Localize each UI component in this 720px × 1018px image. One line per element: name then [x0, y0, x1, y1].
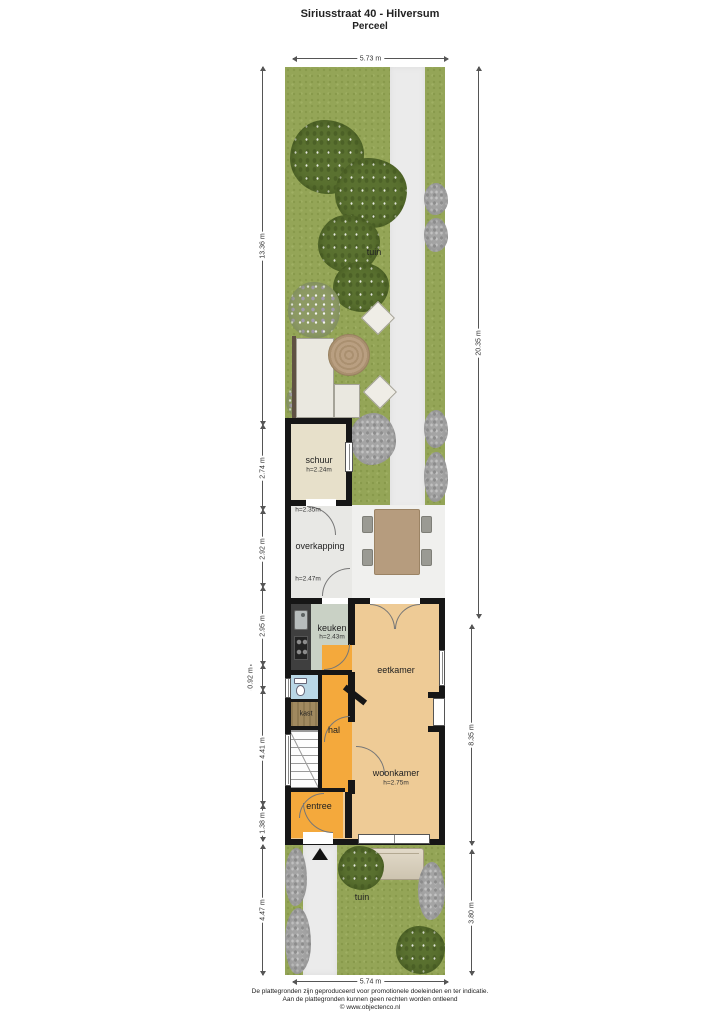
dimension-right-380: 3.80 m	[471, 850, 472, 975]
dimension-label: 4.47 m	[260, 897, 267, 922]
dimension-left-1336: 13.36 m	[262, 67, 263, 425]
dimension-label: 2.74 m	[260, 455, 267, 480]
room-height-woonkamer: h=2.75m	[383, 780, 408, 787]
height-label-235: h=2.35m	[295, 507, 320, 514]
lounge-sofa-corner	[334, 384, 360, 418]
dimension-label: 2.92 m	[260, 536, 267, 561]
wall-toilet-kast	[291, 699, 321, 702]
dimension-label: 3.80 m	[469, 900, 476, 925]
tree	[396, 926, 445, 974]
page-subtitle: Perceel	[190, 21, 550, 32]
dimension-label: 8.35 m	[469, 722, 476, 747]
dimension-label: 4.41 m	[260, 735, 267, 760]
page-title: Siriusstraat 40 - Hilversum	[190, 8, 550, 20]
gray-bush	[350, 413, 396, 465]
flower-bush	[288, 282, 340, 338]
wall-keuken-eetkamer	[348, 598, 355, 645]
wall-entree-woonkamer	[345, 792, 352, 838]
room-label-entree: entree	[306, 801, 332, 811]
dimension-left-447: 4.47 m	[262, 845, 263, 975]
wall-kast-stairs	[287, 726, 322, 730]
room-label-overkapping: overkapping	[295, 541, 344, 551]
disclaimer-line2: Aan de plattegronden kunnen geen rechten…	[150, 996, 590, 1004]
dimension-label: 13.36 m	[260, 231, 267, 260]
round-garden-table	[328, 334, 370, 376]
gray-bush	[424, 410, 448, 448]
overkapping-keuken-door-opening	[322, 598, 348, 604]
room-label-keuken: keuken	[317, 623, 346, 633]
overkapping-left-wall	[285, 505, 291, 600]
kitchen-sink	[294, 610, 308, 630]
dimension-left-138: 1.38 m	[262, 805, 263, 841]
floorplan-page: Siriusstraat 40 - Hilversum Perceel tuin…	[0, 0, 720, 1018]
dining-chair	[421, 549, 432, 566]
dimension-label: 2.95 m	[260, 613, 267, 638]
gray-bush	[418, 862, 445, 920]
dimension-bottom-label: 5.74 m	[357, 979, 384, 986]
schuur-door-opening	[306, 499, 336, 506]
dining-table	[374, 509, 420, 575]
eetkamer-window	[439, 650, 445, 686]
dimension-left-092: 0.92 m	[250, 665, 251, 690]
room-label-schuur: schuur	[305, 455, 332, 465]
dimension-right-835: 8.35 m	[471, 625, 472, 845]
dining-chair	[362, 516, 373, 533]
toilet-window	[285, 678, 291, 698]
dimension-right-2035: 20.35 m	[478, 67, 479, 618]
gray-bush	[424, 183, 448, 215]
dimension-label: 1.38 m	[260, 810, 267, 835]
room-label-woonkamer: woonkamer	[373, 768, 420, 778]
gray-bush	[424, 218, 448, 252]
toilet-tank	[294, 678, 307, 684]
gray-bush	[285, 848, 307, 906]
dimension-left-274: 2.74 m	[262, 425, 263, 510]
wall-toilet-right	[318, 675, 322, 728]
disclaimer-line1: De plattegronden zijn geproduceerd voor …	[150, 988, 590, 996]
dining-chair	[362, 549, 373, 566]
room-label-tuin-back: tuin	[367, 247, 382, 257]
french-door-opening	[370, 598, 420, 604]
gray-bush	[285, 908, 311, 974]
room-label-hal: hal	[328, 725, 340, 735]
room-height-keuken: h=2.43m	[319, 634, 344, 641]
height-label-247: h=2.47m	[295, 576, 320, 583]
disclaimer-line3: © www.objectenco.nl	[150, 1004, 590, 1012]
woonkamer-window	[358, 834, 430, 844]
room-label-tuin-front: tuin	[355, 892, 370, 902]
dining-chair	[421, 516, 432, 533]
dimension-left-092-segment	[262, 665, 263, 690]
page-header: Siriusstraat 40 - Hilversum Perceel	[190, 8, 550, 32]
front-door-opening	[303, 832, 333, 844]
kitchen-stove	[294, 636, 308, 660]
dimension-label: 0.92 m	[248, 665, 255, 690]
dimension-bottom: 5.74 m	[293, 981, 448, 982]
dimension-left-441: 4.41 m	[262, 690, 263, 805]
toilet-bowl	[296, 685, 305, 696]
tree	[338, 846, 384, 890]
dimension-left-295: 2.95 m	[262, 587, 263, 665]
wall-hal-entree	[287, 788, 345, 792]
room-height-schuur: h=2.24m	[306, 467, 331, 474]
wall-stairs-right	[318, 730, 322, 790]
room-label-kast: kast	[300, 711, 313, 718]
gray-bush	[424, 452, 448, 502]
dimension-top-label: 5.73 m	[357, 56, 384, 63]
dimension-label: 20.35 m	[476, 328, 483, 357]
chimney-niche	[433, 698, 445, 726]
schuur-window	[345, 442, 353, 472]
dimension-left-292: 2.92 m	[262, 510, 263, 587]
chimney-stub-bottom	[428, 726, 445, 732]
stairs-window	[285, 734, 291, 786]
dimension-top: 5.73 m	[293, 58, 448, 59]
room-label-eetkamer: eetkamer	[377, 665, 415, 675]
north-arrow-icon	[312, 848, 328, 860]
disclaimer: De plattegronden zijn geproduceerd voor …	[150, 988, 590, 1012]
